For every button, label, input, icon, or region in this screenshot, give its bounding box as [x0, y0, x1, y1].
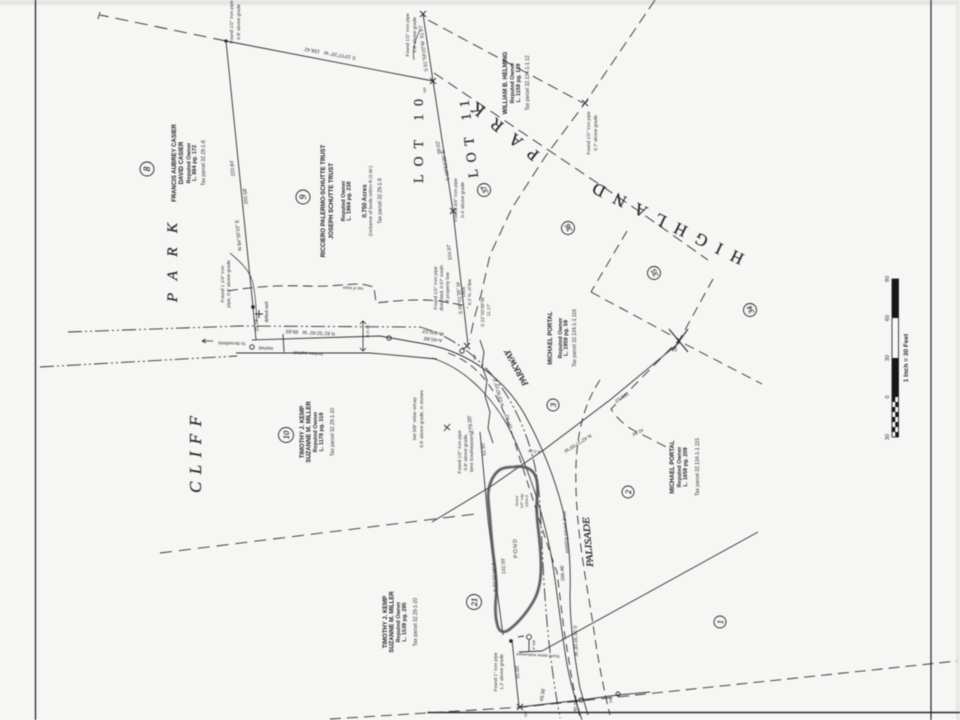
svg-text:Found 1 1/4" iron: Found 1 1/4" iron: [220, 265, 226, 302]
svg-text:30: 30: [885, 355, 891, 361]
svg-text:50.00': 50.00': [515, 665, 521, 679]
svg-text:Found 1/2" iron pipe: Found 1/2" iron pipe: [457, 430, 463, 473]
svg-text:WILLIAM B. HELMING: WILLIAM B. HELMING: [503, 51, 509, 114]
svg-text:Found 1/2" iron pipe: Found 1/2" iron pipe: [405, 13, 411, 56]
svg-text:L. 884 pg. 172: L. 884 pg. 172: [192, 145, 198, 181]
svg-text:Tax parcel 32.134-1-1.115: Tax parcel 32.134-1-1.115: [695, 438, 701, 496]
svg-text:S 22°02'05"W: S 22°02'05"W: [480, 297, 486, 327]
svg-text:1 Inch = 30 Feet: 1 Inch = 30 Feet: [903, 333, 910, 382]
svg-text:DAVID CASIER: DAVID CASIER: [179, 141, 185, 184]
svg-text:drilled well: drilled well: [264, 301, 269, 322]
svg-text:L. 1959 pg. 59: L. 1959 pg. 59: [564, 320, 570, 356]
svg-text:0.750 Acres: 0.750 Acres: [363, 184, 369, 218]
svg-text:of property line: of property line: [445, 272, 451, 304]
svg-text:L. 1964 pg. 238: L. 1964 pg. 238: [347, 181, 353, 220]
svg-text:102.00': 102.00': [501, 558, 508, 575]
svg-text:2: 2: [624, 490, 633, 494]
svg-text:Ditch: Ditch: [461, 286, 466, 297]
svg-text:Tax parcel 32.29-1-20: Tax parcel 32.29-1-20: [413, 598, 419, 647]
svg-text:4" tall: 4" tall: [531, 640, 536, 650]
svg-text:Tax parcel 32.29-1-10: Tax parcel 32.29-1-10: [330, 408, 336, 457]
svg-text:0.2' N. of line: 0.2' N. of line: [467, 278, 472, 305]
svg-text:OP: OP: [422, 87, 427, 93]
svg-text:asphalt: asphalt: [258, 346, 274, 352]
svg-text:Tax parcel 32.134-1-1.12: Tax parcel 32.134-1-1.12: [525, 55, 531, 111]
svg-text:MICHAEL PORTAL: MICHAEL PORTAL: [670, 440, 676, 493]
svg-text:0.7' above grade: 0.7' above grade: [593, 115, 599, 151]
svg-text:0.4' above grade: 0.4' above grade: [460, 182, 466, 218]
svg-text:Found 1/2" iron pipe: Found 1/2" iron pipe: [586, 111, 592, 154]
svg-text:LOT 10: LOT 10: [412, 93, 427, 183]
svg-text:L. 1659 pg. 209: L. 1659 pg. 209: [683, 447, 689, 486]
svg-text:disturbed, 0.57' south: disturbed, 0.57' south: [439, 265, 445, 311]
svg-text:pipe, 0.2' above grade: pipe, 0.2' above grade: [226, 260, 232, 308]
svg-text:L. 1178 pg. 319: L. 1178 pg. 319: [319, 413, 325, 452]
svg-text:11.17': 11.17': [486, 304, 492, 317]
svg-text:0.8' above grade,: 0.8' above grade,: [463, 434, 469, 471]
svg-text:MICHAEL PORTAL: MICHAEL PORTAL: [548, 311, 554, 364]
svg-text:90: 90: [885, 276, 891, 282]
svg-text:R.O.W.: R.O.W.: [527, 449, 540, 455]
svg-text:0.5' above grade, in stones: 0.5' above grade, in stones: [419, 390, 425, 448]
svg-text:Found 1" iron pipe: Found 1" iron pipe: [493, 652, 499, 691]
svg-text:1954.6: 1954.6: [524, 494, 529, 507]
svg-text:(inclusive of lands within R.O: (inclusive of lands within R.O.W.): [368, 166, 374, 237]
svg-text:OP: OP: [472, 354, 477, 360]
svg-text:8: 8: [142, 166, 152, 171]
svg-text:R.O.W.: R.O.W.: [365, 325, 370, 338]
svg-text:SUZANNE M. MILLER: SUZANNE M. MILLER: [390, 591, 396, 653]
svg-text:TIMOTHY J. KEMP: TIMOTHY J. KEMP: [383, 596, 389, 649]
svg-text:POND: POND: [512, 538, 519, 558]
svg-text:Found 1/2" iron pipe: Found 1/2" iron pipe: [229, 0, 235, 43]
svg-text:3: 3: [549, 403, 558, 408]
svg-text:SUZANNE M. MILLER: SUZANNE M. MILLER: [307, 401, 313, 463]
svg-text:Tax parcel 32.29-1-9: Tax parcel 32.29-1-9: [378, 178, 384, 224]
svg-text:Tax parcel 32.29-1-8: Tax parcel 32.29-1-8: [201, 140, 207, 186]
svg-text:60: 60: [885, 315, 891, 321]
svg-text:166.46': 166.46': [560, 565, 567, 582]
svg-text:1.2' above grade: 1.2' above grade: [499, 654, 505, 690]
svg-text:9: 9: [298, 194, 308, 199]
svg-text:CLIFF: CLIFF: [186, 409, 205, 493]
svg-text:OP: OP: [673, 346, 678, 352]
svg-text:L. 1158 pg. 139: L. 1158 pg. 139: [516, 64, 522, 103]
svg-text:OP: OP: [523, 711, 528, 717]
svg-text:21: 21: [469, 598, 479, 607]
svg-text:1: 1: [716, 620, 725, 624]
svg-text:48.25': 48.25': [572, 699, 578, 712]
svg-text:Tax parcel 32.134-1-1.116: Tax parcel 32.134-1-1.116: [572, 309, 578, 367]
svg-text:RICCIERO PALERMO-SCHUTTE TRUST: RICCIERO PALERMO-SCHUTTE TRUST: [321, 144, 327, 257]
svg-text:Found 3/4" iron pipe: Found 3/4" iron pipe: [453, 178, 459, 221]
svg-text:FRANCIS AUBREY CASIER: FRANCIS AUBREY CASIER: [172, 124, 178, 202]
svg-text:30: 30: [885, 434, 891, 440]
svg-text:L. 1539 pg. 295: L. 1539 pg. 295: [402, 602, 408, 641]
svg-text:TIMOTHY J. KEMP: TIMOTHY J. KEMP: [300, 406, 306, 459]
svg-text:0.8' above grade: 0.8' above grade: [236, 4, 242, 40]
svg-text:Set 5/8" rebar w/cap: Set 5/8" rebar w/cap: [412, 397, 418, 441]
svg-text:Found 1/2" iron pipe: Found 1/2" iron pipe: [433, 266, 439, 309]
svg-text:bent Southeasterly: bent Southeasterly: [469, 431, 475, 472]
svg-text:10: 10: [281, 430, 291, 439]
svg-text:To Broadway: To Broadway: [218, 340, 246, 346]
svg-text:OP: OP: [608, 697, 613, 703]
svg-text:0.8' above grade: 0.8' above grade: [412, 17, 418, 53]
svg-text:JOSEPH SCHUTTE TRUST: JOSEPH SCHUTTE TRUST: [329, 163, 335, 239]
svg-text:0: 0: [885, 395, 891, 398]
